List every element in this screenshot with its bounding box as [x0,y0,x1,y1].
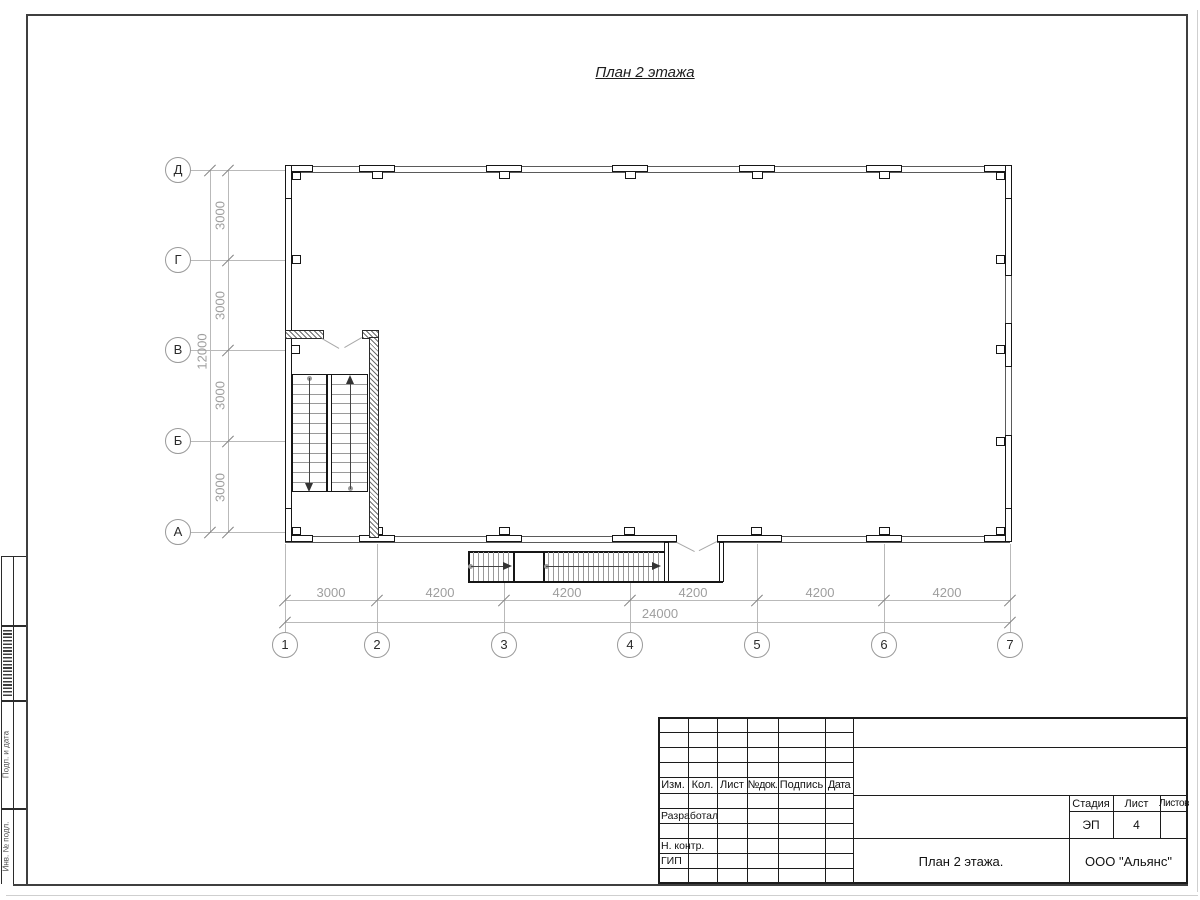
frame-top [26,14,1188,16]
wall-notch [291,345,300,354]
axis-extension-line [285,544,286,632]
stair-direction-arrowhead [652,562,661,570]
corner-column-notch [292,527,301,535]
page-edge-right [1197,10,1198,892]
stamp-row-razrabotal: Разработал [661,810,718,822]
frame-left [26,14,28,886]
stamp-grid-line [658,732,853,733]
axis-extension-line [191,441,285,442]
stamp-grid-line [658,823,853,824]
stamp-sheets-header: Листов [1158,798,1190,809]
dim-left-2: 3000 [213,276,228,336]
stair-path-line [309,378,310,486]
stamp-grid-line [688,717,689,884]
axis-extension-line [191,532,285,533]
dim-left-total: 12000 [195,322,210,382]
wall-notch [996,255,1005,264]
stair-wall-hatched [285,330,324,339]
corner-column-notch [292,172,301,180]
door-swing-line [699,541,717,551]
wall-notch [292,255,301,264]
axis-bubble-3: 3 [491,632,517,658]
stamp-doc-title: План 2 этажа. [853,854,1069,869]
stair-direction-arrowhead [503,562,512,570]
stamp-col-ndok: №док. [746,779,779,791]
axis-bubble-A: А [165,519,191,545]
wall-notch [996,345,1005,354]
pilaster-notch [499,527,510,535]
pilaster-notch [499,171,510,179]
corner-column-notch [996,172,1005,180]
porch-wall [719,542,724,582]
dim-left-1: 3000 [213,186,228,246]
porch-stair-edge [468,581,723,583]
side-stamp-line [1,625,26,627]
dim-bottom-2: 4200 [410,585,470,600]
axis-bubble-1: 1 [272,632,298,658]
dimension-line-left-total [210,170,211,532]
dim-bottom-total: 24000 [625,606,695,621]
door-swing-line [344,337,362,348]
axis-bubble-5: 5 [744,632,770,658]
stamp-grid-line [658,777,853,778]
stamp-col-izm: Изм. [658,779,688,791]
stamp-grid-line [658,747,853,748]
side-stamp-label-2: Инв. № подл. [2,819,11,875]
axis-bubble-G: Г [165,247,191,273]
pilaster-door-jamb [612,535,677,542]
stair-wall-hatched [369,337,379,538]
axis-bubble-V: В [165,337,191,363]
axis-bubble-B: Б [165,428,191,454]
corner-column [1005,508,1012,542]
stair-direction-arrowhead [346,375,354,384]
stair-direction-arrowhead [305,483,313,492]
axis-extension-line [377,544,378,632]
pilaster-notch [879,527,890,535]
door-swing-line [677,542,695,552]
dim-left-3: 3000 [213,366,228,426]
side-stamp-signature-block [3,628,12,696]
wall-top-inner-face [285,172,1010,173]
pilaster-door-jamb [717,535,782,542]
drawing-sheet: План 2 этажа Д Г В Б А 1 2 3 4 5 6 7 300… [0,0,1200,900]
corner-column [285,165,292,199]
axis-extension-line [884,544,885,632]
side-stamp-line [1,556,26,557]
stamp-grid-line [658,793,853,794]
dim-bottom-6: 4200 [917,585,977,600]
axis-extension-line [191,260,285,261]
dim-left-4: 3000 [213,458,228,518]
stamp-grid-line [853,795,1188,796]
axis-bubble-2: 2 [364,632,390,658]
pilaster-notch [879,171,890,179]
stamp-sheet-value: 4 [1113,818,1160,832]
stamp-grid-line [658,853,853,854]
corner-column [285,508,292,542]
stamp-row-gip: ГИП [661,855,682,867]
axis-bubble-4: 4 [617,632,643,658]
stair-mid-wall [326,374,328,492]
side-stamp-line [13,556,14,884]
side-stamp-label-1: Подп. и дата [2,727,11,783]
stamp-stage-header: Стадия [1069,798,1113,810]
axis-extension-line [504,583,505,632]
stamp-grid-line [778,717,779,884]
axis-extension-line [757,544,758,632]
pilaster-notch [752,171,763,179]
stamp-grid-line [658,868,853,869]
stamp-col-kol: Кол. [688,779,717,791]
stamp-grid-line [853,747,1188,748]
stamp-grid-line [658,838,853,839]
pilaster [866,535,902,542]
stamp-col-data: Дата [825,779,853,791]
axis-bubble-6: 6 [871,632,897,658]
wall-left [285,166,292,542]
pilaster-notch [625,171,636,179]
stamp-sheet-header: Лист [1113,798,1160,810]
stamp-grid-line [658,808,853,809]
porch-landing-edge [513,551,515,581]
dim-bottom-3: 4200 [537,585,597,600]
dim-bottom-1: 3000 [301,585,361,600]
stamp-grid-line [1069,811,1188,812]
door-swing-line [322,338,340,349]
wall-bottom-face [285,542,677,543]
stair-path-line [546,566,658,567]
corner-column [1005,165,1012,199]
pilaster [486,535,522,542]
stamp-row-nkontr: Н. контр. [661,840,704,852]
stamp-grid-line [853,838,1188,839]
stamp-stage-value: ЭП [1069,818,1113,832]
axis-bubble-D: Д [165,157,191,183]
dimension-line-bottom-chain [285,600,1010,601]
side-stamp-line [1,700,26,702]
stamp-grid-line [658,762,853,763]
wall-notch [996,437,1005,446]
pilaster-notch [624,527,635,535]
dim-bottom-5: 4200 [790,585,850,600]
side-stamp-line [1,808,26,810]
axis-extension-line [1010,544,1011,632]
stamp-grid-line [825,717,826,884]
page-edge-bottom [6,895,1198,896]
wall-right-solid-segment [1005,323,1012,367]
pilaster-notch [372,171,383,179]
stair-path-line [350,381,351,489]
wall-bottom-face [717,542,1010,543]
pilaster-notch [751,527,762,535]
stamp-company: ООО "Альянс" [1069,854,1188,869]
frame-bottom [13,884,1188,886]
axis-extension-line [191,170,285,171]
dim-bottom-4: 4200 [663,585,723,600]
stamp-col-podpis: Подпись [778,779,825,791]
axis-bubble-7: 7 [997,632,1023,658]
stamp-grid-line [717,717,718,884]
stamp-grid-line [747,717,748,884]
porch-wall [664,542,669,582]
dimension-line-bottom-total [285,622,1010,623]
stamp-col-list: Лист [717,779,747,791]
corner-column-notch [996,527,1005,535]
